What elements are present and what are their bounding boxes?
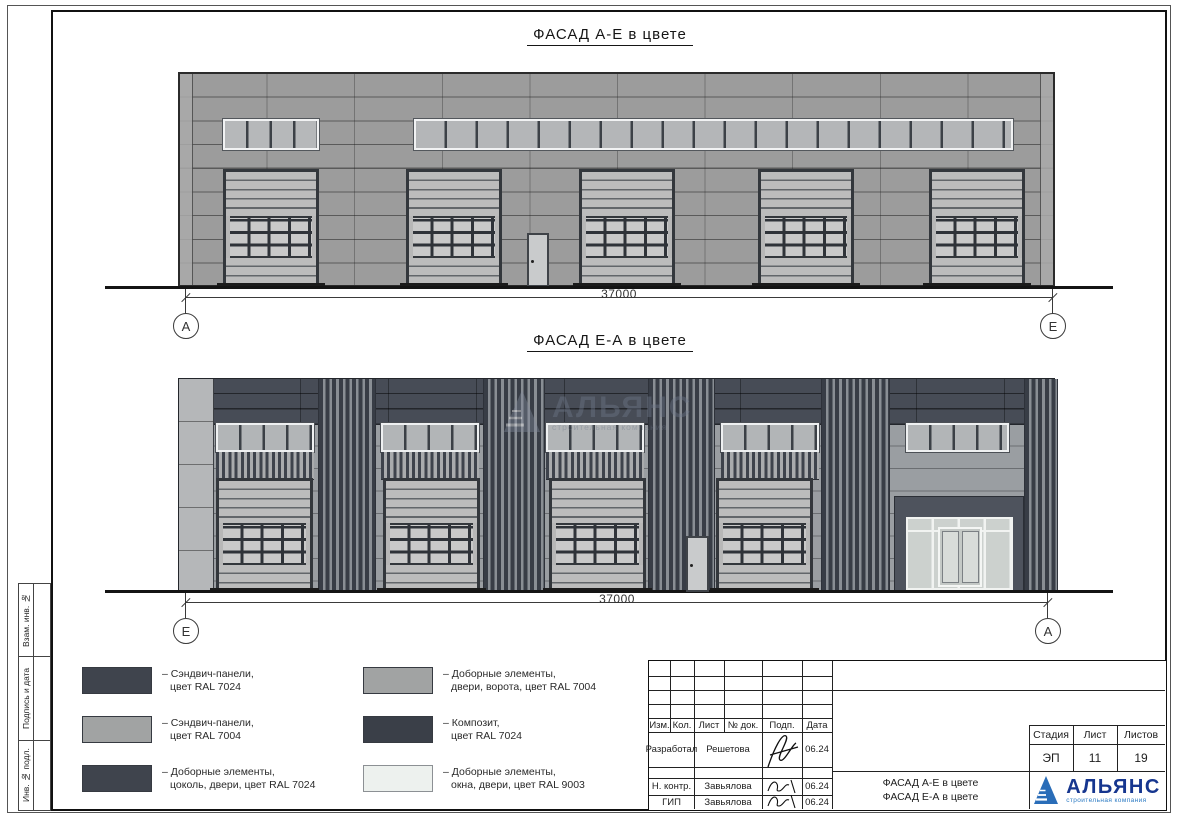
corner-trim [1040, 74, 1053, 285]
legend-swatch [363, 716, 433, 743]
garage-door [406, 169, 502, 287]
tb-sheet-label: Лист [1073, 725, 1117, 744]
axis-marker-e: Е [173, 618, 199, 644]
dimension-label: 37000 [517, 592, 717, 606]
window-band [381, 423, 479, 452]
tb-header-izm: Изм. [649, 718, 670, 732]
window-band [414, 119, 1013, 150]
logo-triangle-icon [1033, 775, 1059, 805]
corner-trim [180, 74, 193, 285]
tb-header-data: Дата [802, 718, 832, 732]
window-band [721, 423, 819, 452]
tb-date: 06.24 [802, 795, 832, 809]
storefront-glazing [906, 517, 1013, 590]
under-window-slats [721, 452, 819, 480]
garage-door [579, 169, 675, 287]
extension-line [1047, 593, 1048, 618]
vertical-fins [318, 379, 376, 590]
legend-item-label: цвет RAL 7004 [162, 730, 254, 743]
legend-item-label: – Сэндвич-панели, [162, 668, 254, 681]
garage-door [758, 169, 854, 287]
vertical-fins [821, 379, 890, 590]
garage-door [716, 478, 813, 592]
company-name: АЛЬЯНС [1066, 777, 1161, 797]
extension-line [1052, 289, 1053, 314]
margin-cell-vzam: Взам. инв. № [18, 583, 51, 657]
garage-door [383, 478, 480, 592]
legend-swatch [82, 667, 152, 694]
corner-trim [179, 379, 214, 590]
drawing-sheet: Взам. инв. № Подпись и дата Инв. № подл.… [0, 0, 1177, 819]
legend-item-label: двери, ворота, цвет RAL 7004 [443, 681, 596, 694]
tb-header-kol: Кол. [670, 718, 694, 732]
facade-a-e-drawing [178, 72, 1055, 287]
tb-doc-title: ФАСАД А-Е в цвете ФАСАД Е-А в цвете [832, 771, 1029, 809]
legend-swatch [363, 667, 433, 694]
under-window-slats [216, 452, 314, 480]
margin-label: Подпись и дата [19, 657, 33, 740]
axis-marker-a: А [173, 313, 199, 339]
title-block: Изм. Кол. Лист № док. Подп. Дата Разрабо… [648, 660, 1167, 811]
legend-item-label: – Композит, [443, 717, 522, 730]
glass-double-door [938, 527, 982, 587]
tb-role: ГИП [649, 795, 694, 809]
margin-label: Взам. инв. № [19, 584, 33, 656]
facade-a-e-title: ФАСАД А-Е в цвете [527, 26, 693, 46]
tb-stage-label: Стадия [1029, 725, 1073, 744]
window-band [546, 423, 644, 452]
company-subtitle: строительная компания [1066, 797, 1161, 804]
entrance-portal [894, 496, 1024, 592]
signature [762, 729, 802, 771]
tb-role: Разработал [649, 732, 694, 767]
signature [765, 778, 801, 795]
vertical-fins [1024, 379, 1058, 590]
tb-name: Завьялова [694, 778, 762, 795]
tb-date: 06.24 [802, 778, 832, 795]
margin-cell-inv: Инв. № подл. [18, 740, 51, 811]
company-logo: АЛЬЯНС строительная компания [1029, 771, 1165, 809]
axis-marker-a: А [1035, 618, 1061, 644]
facade-e-a-title: ФАСАД Е-А в цвете [527, 332, 693, 352]
vertical-fins [483, 379, 545, 590]
legend-item-label: окна, двери, цвет RAL 9003 [443, 779, 585, 792]
extension-line [185, 593, 186, 618]
entry-door [527, 233, 549, 287]
legend-item-label: – Сэндвич-панели, [162, 717, 254, 730]
window-band [216, 423, 314, 452]
entry-door [686, 536, 709, 592]
facade-e-a-title-wrap: ФАСАД Е-А в цвете [400, 332, 820, 352]
margin-cell-podpis: Подпись и дата [18, 656, 51, 741]
tb-stage-value: ЭП [1029, 744, 1073, 771]
tb-sheets-value: 19 [1117, 744, 1165, 771]
tb-header-list: Лист [694, 718, 724, 732]
legend-item-label: цоколь, двери, цвет RAL 7024 [162, 779, 315, 792]
tb-sheets-label: Листов [1117, 725, 1165, 744]
legend-swatch [82, 765, 152, 792]
under-window-slats [546, 452, 644, 480]
margin-label: Инв. № подл. [19, 741, 33, 810]
tb-sheet-value: 11 [1073, 744, 1117, 771]
under-window-slats [381, 452, 479, 480]
facade-e-a-drawing [178, 378, 1055, 591]
tb-name: Завьялова [694, 795, 762, 809]
tb-role: Н. контр. [649, 778, 694, 795]
tb-date: 06.24 [802, 732, 832, 767]
legend-swatch [363, 765, 433, 792]
window-band [906, 423, 1009, 452]
tb-name: Решетова [694, 732, 762, 767]
garage-door [929, 169, 1025, 287]
tb-header-ndok: № док. [724, 718, 762, 732]
legend-swatch [82, 716, 152, 743]
legend-item-label: цвет RAL 7024 [162, 681, 254, 694]
garage-door [216, 478, 313, 592]
legend-item-label: – Доборные элементы, [443, 766, 585, 779]
legend-item-label: цвет RAL 7024 [443, 730, 522, 743]
legend-item-label: – Доборные элементы, [162, 766, 315, 779]
garage-door [549, 478, 646, 592]
window-band [223, 119, 319, 150]
axis-marker-e: Е [1040, 313, 1066, 339]
garage-door [223, 169, 319, 287]
extension-line [185, 289, 186, 314]
signature [765, 794, 801, 810]
facade-a-e-title-wrap: ФАСАД А-Е в цвете [400, 26, 820, 46]
legend-item-label: – Доборные элементы, [443, 668, 596, 681]
dimension-label: 37000 [519, 287, 719, 301]
